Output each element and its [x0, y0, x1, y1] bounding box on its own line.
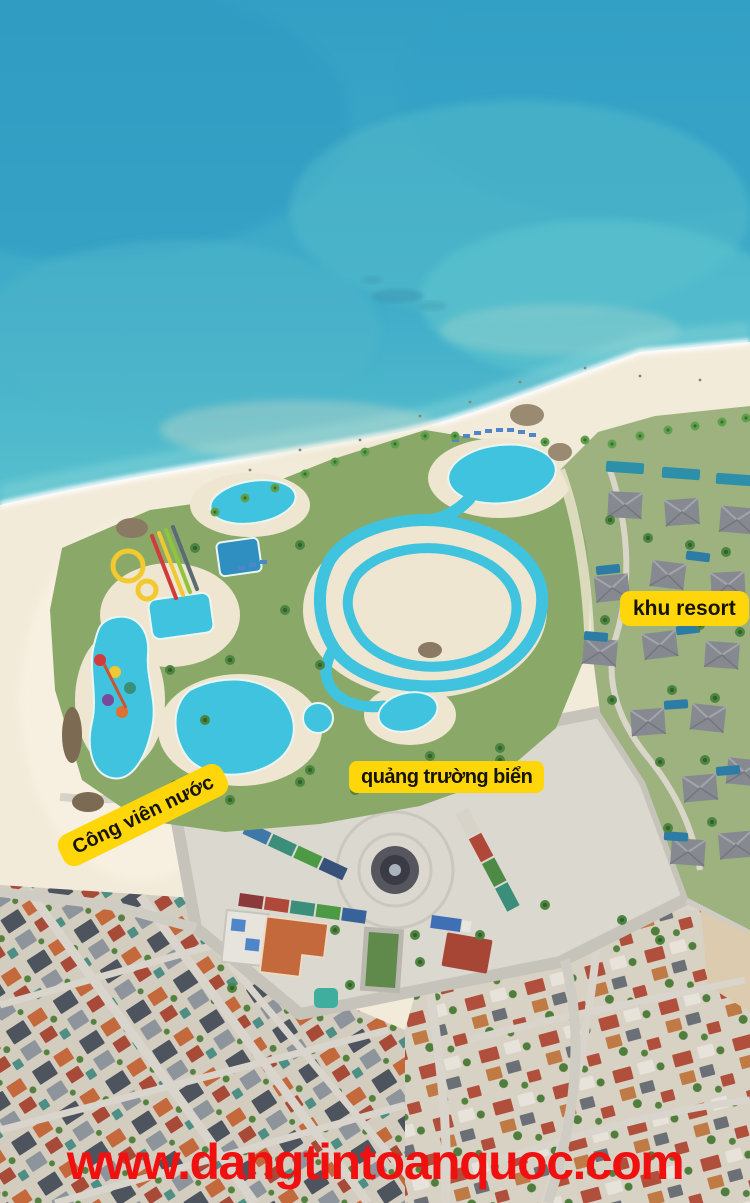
fountain [371, 846, 419, 894]
small-pool [314, 988, 338, 1008]
label-resort: khu resort [620, 591, 749, 626]
aerial-photo: Công viên nước quảng trường biển khu res… [0, 0, 750, 1203]
watermark-text: www.dangtintoanquoc.com [67, 1133, 683, 1191]
label-beach-square: quảng trường biển [349, 761, 544, 793]
sunken-garden [360, 927, 404, 994]
